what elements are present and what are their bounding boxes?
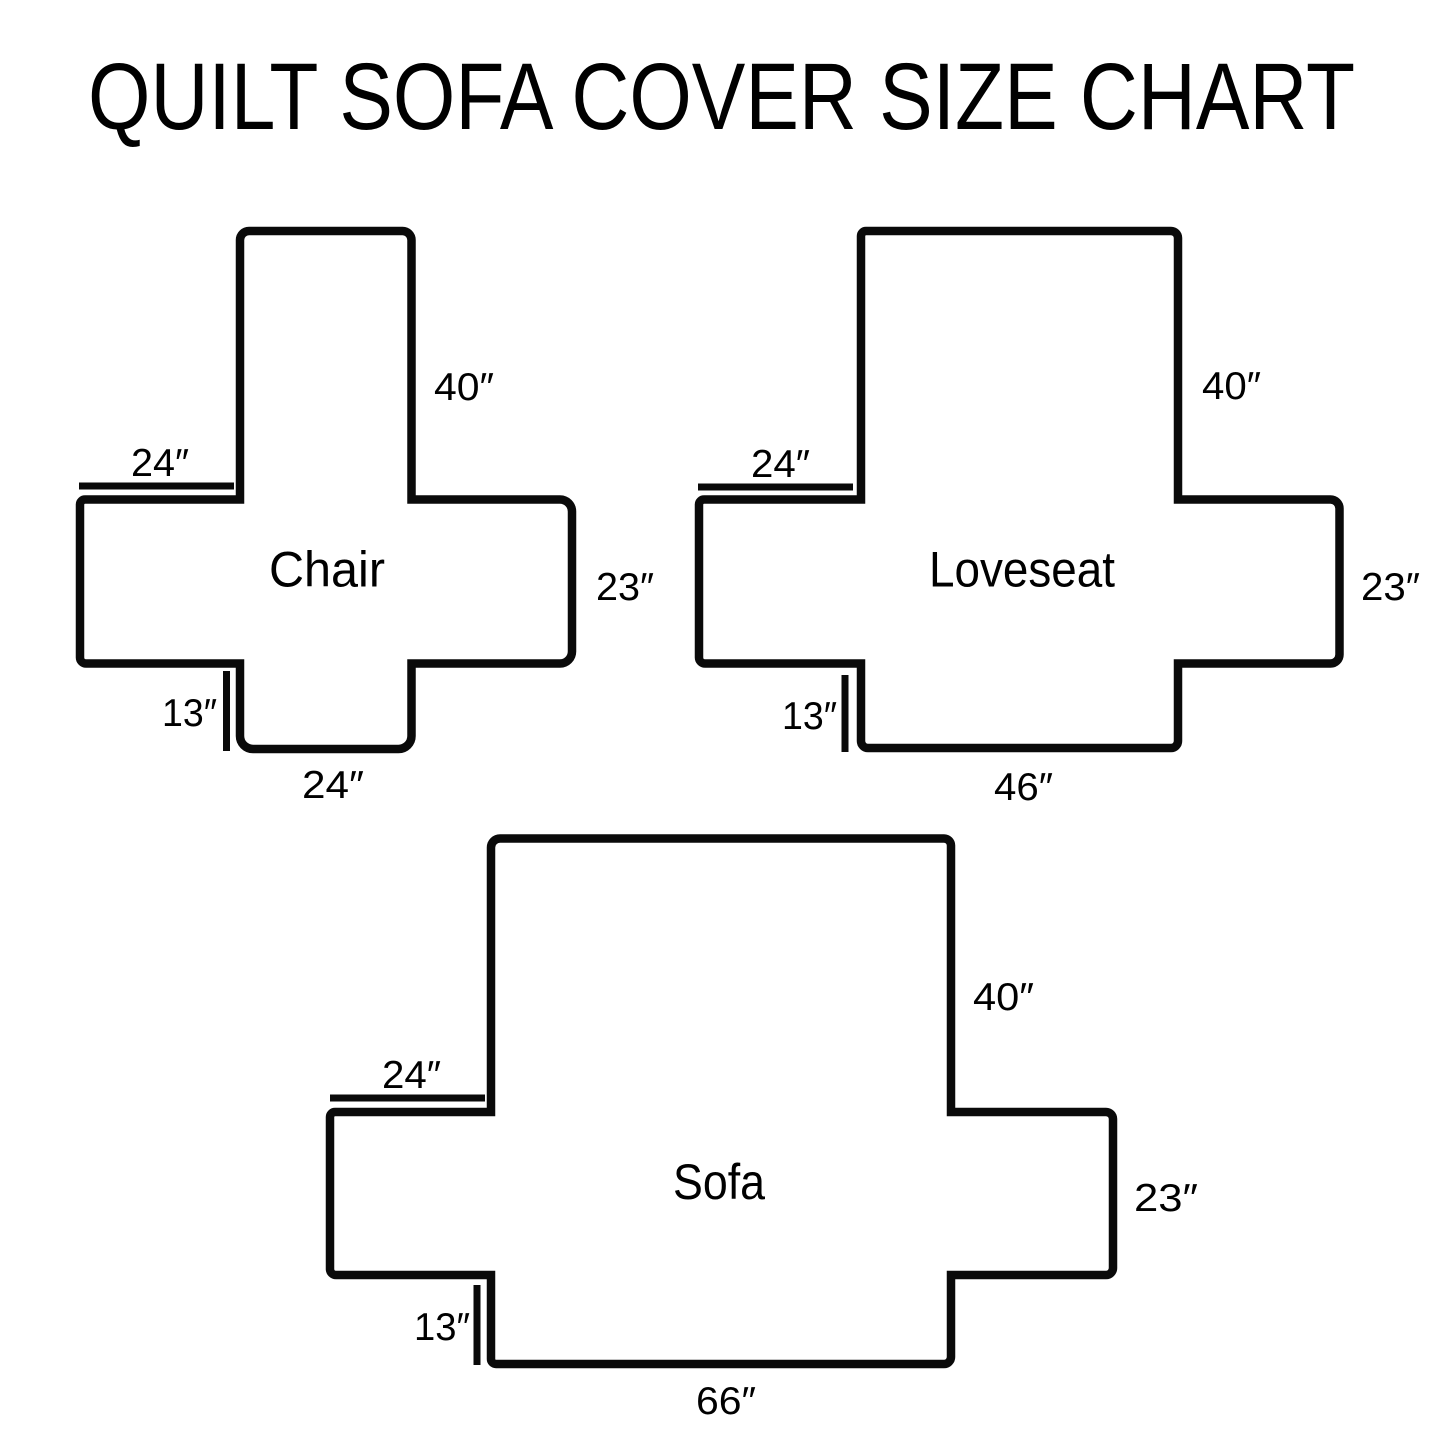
- svg-text:24″: 24″: [382, 1054, 441, 1097]
- svg-text:24″: 24″: [302, 764, 364, 807]
- svg-text:24″: 24″: [131, 442, 189, 485]
- svg-text:66″: 66″: [696, 1380, 756, 1423]
- svg-text:Sofa: Sofa: [673, 1154, 765, 1210]
- svg-text:Loveseat: Loveseat: [929, 542, 1115, 598]
- svg-text:23″: 23″: [1134, 1177, 1198, 1220]
- svg-text:46″: 46″: [994, 766, 1053, 809]
- svg-text:40″: 40″: [434, 366, 494, 409]
- svg-text:23″: 23″: [596, 566, 654, 609]
- svg-text:40″: 40″: [1202, 365, 1261, 408]
- svg-text:23″: 23″: [1361, 566, 1420, 609]
- svg-text:40″: 40″: [973, 976, 1034, 1019]
- svg-text:13″: 13″: [162, 692, 217, 735]
- svg-text:Chair: Chair: [269, 542, 385, 598]
- svg-text:24″: 24″: [751, 443, 810, 486]
- svg-text:QUILT SOFA COVER SIZE CHART: QUILT SOFA COVER SIZE CHART: [88, 44, 1355, 150]
- svg-text:13″: 13″: [782, 695, 837, 738]
- svg-text:13″: 13″: [414, 1306, 470, 1349]
